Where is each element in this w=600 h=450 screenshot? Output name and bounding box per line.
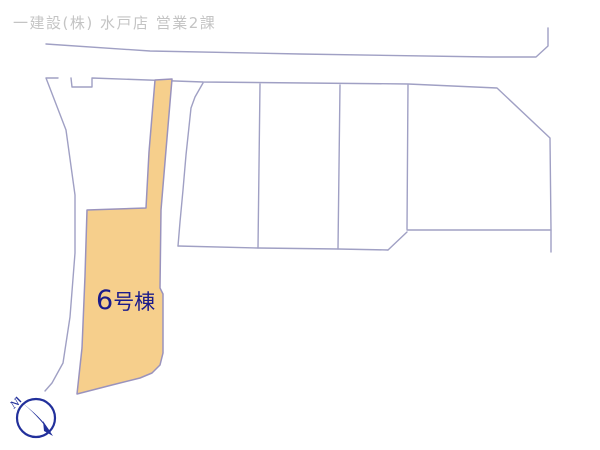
lot-divider-1 bbox=[258, 84, 260, 248]
site-boundary-left-line bbox=[45, 78, 75, 391]
site-plan-image: 一建設(株) 水戸店 営業2課 6号棟 N bbox=[0, 0, 600, 450]
lot6-label-suffix: 号棟 bbox=[113, 290, 155, 314]
lot-right-left-edge bbox=[407, 85, 408, 229]
road-boundary-line bbox=[46, 28, 548, 57]
north-compass-icon: N bbox=[8, 396, 55, 437]
lot6-polygon bbox=[77, 79, 172, 394]
lot-divider-2 bbox=[338, 85, 340, 249]
lots-bottom-boundary-line bbox=[178, 246, 388, 250]
compass-north-label: N bbox=[8, 396, 24, 412]
plot-map: 6号棟 N bbox=[0, 0, 600, 450]
lots-bottom-diagonal bbox=[388, 232, 407, 250]
lot6-label: 6号棟 bbox=[96, 285, 155, 316]
lot-a-left-boundary bbox=[178, 83, 203, 246]
lot6-label-number: 6 bbox=[96, 285, 113, 316]
